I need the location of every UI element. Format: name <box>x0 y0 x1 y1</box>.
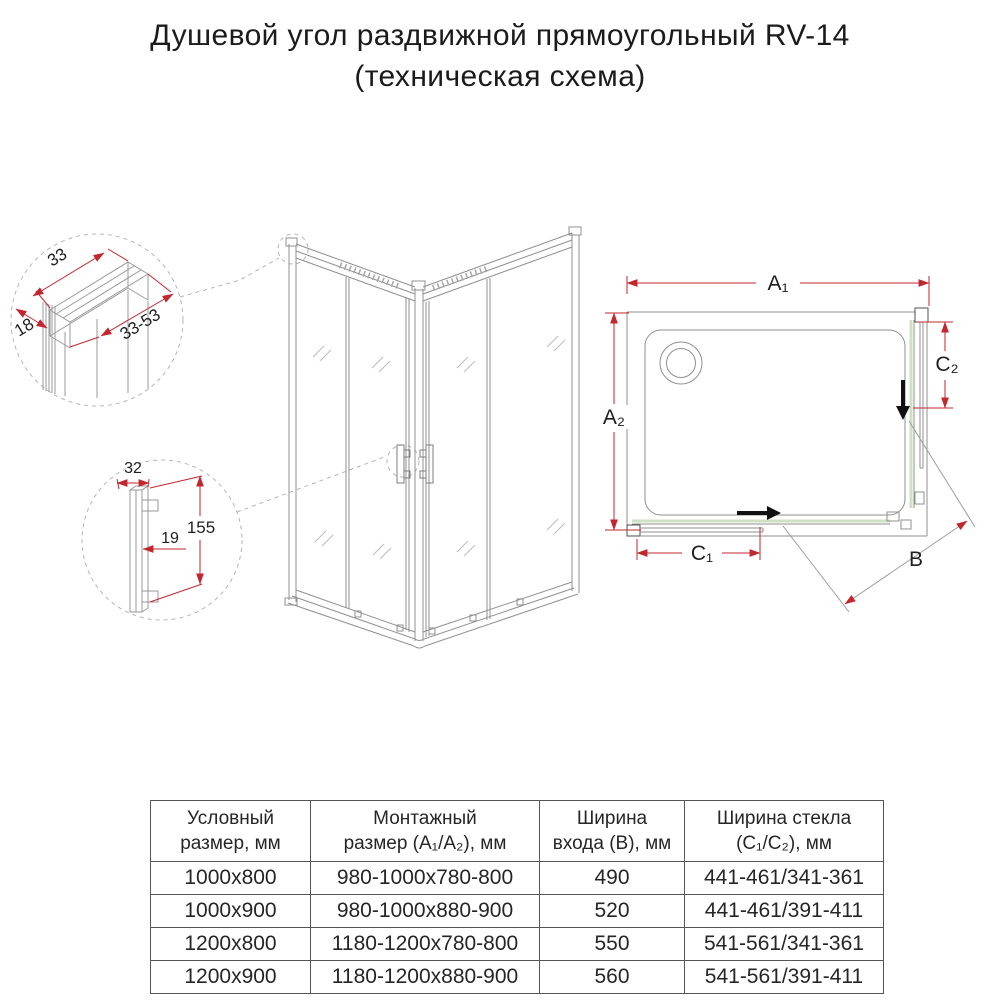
wall-posts <box>285 227 581 641</box>
col-header-nominal-size: Условный размер, мм <box>151 801 311 862</box>
cell-glass-width: 541-561/341-361 <box>685 928 884 961</box>
table-header-row: Условный размер, мм Монтажный размер (A₁… <box>151 801 884 862</box>
cell-mounting-size: 1180-1200x880-900 <box>311 961 540 994</box>
slide-arrow-right-shaft <box>737 511 768 515</box>
table-row: 1000x900 980-1000x880-900 520 441-461/39… <box>151 895 884 928</box>
header-text: Ширина стекла <box>687 806 881 831</box>
callout-circle-handle <box>387 445 419 477</box>
cell-mounting-size: 980-1000x780-800 <box>311 862 540 895</box>
header-text: входа (B), мм <box>542 831 682 856</box>
handle-gap-label: 19 <box>161 530 179 547</box>
handle-depth-label: 32 <box>124 460 142 477</box>
detail-handle-view: 32 19 155 <box>82 460 242 620</box>
header-text: (C₁/C₂), мм <box>687 831 881 856</box>
handle-height-label: 155 <box>187 518 215 537</box>
cell-nominal-size: 1000x800 <box>151 862 311 895</box>
cell-glass-width: 441-461/391-411 <box>685 895 884 928</box>
dim-label-c2: C₂ <box>935 353 958 376</box>
technical-scheme-page: Душевой угол раздвижной прямоугольный RV… <box>0 0 1000 1000</box>
cell-mounting-size: 1180-1200x780-800 <box>311 928 540 961</box>
leader-to-handle <box>237 456 387 512</box>
table-row: 1200x800 1180-1200x780-800 550 541-561/3… <box>151 928 884 961</box>
header-text: размер (A₁/A₂), мм <box>313 831 537 856</box>
detail-profile-view: 33 18 33-53 <box>11 234 183 406</box>
header-text: Условный <box>153 806 308 831</box>
header-text: Ширина <box>542 806 682 831</box>
glass-panel-edges <box>346 277 490 637</box>
dim-label-a2: A₂ <box>603 406 625 429</box>
dim-label-b: B <box>909 548 923 571</box>
drain-circle <box>660 342 702 384</box>
cell-entry-width: 550 <box>540 928 685 961</box>
cell-nominal-size: 1200x900 <box>151 961 311 994</box>
cell-entry-width: 490 <box>540 862 685 895</box>
table-row: 1000x800 980-1000x780-800 490 441-461/34… <box>151 862 884 895</box>
door-direction-arrows <box>737 380 910 520</box>
cell-entry-width: 560 <box>540 961 685 994</box>
slide-arrow-down-head <box>896 406 910 420</box>
bottom-glass-wall <box>632 521 927 536</box>
cell-nominal-size: 1000x900 <box>151 895 311 928</box>
cell-glass-width: 441-461/341-361 <box>685 862 884 895</box>
cell-mounting-size: 980-1000x880-900 <box>311 895 540 928</box>
tray-outline <box>627 308 928 536</box>
col-header-entry-width: Ширина входа (B), мм <box>540 801 685 862</box>
leader-to-profile <box>180 258 279 297</box>
bottom-tray <box>288 582 578 648</box>
plan-view: A₁ A₂ C₂ C₁ B <box>595 271 975 612</box>
profile-dimensions <box>16 249 173 347</box>
header-text: Монтажный <box>313 806 537 831</box>
profile-range-label: 33-53 <box>117 305 164 344</box>
cell-nominal-size: 1200x800 <box>151 928 311 961</box>
profile-depth-label: 18 <box>11 314 37 340</box>
dim-label-a1: A₁ <box>767 272 788 295</box>
glass-reflection-marks <box>313 336 565 559</box>
header-text: размер, мм <box>153 831 308 856</box>
profile-width-label: 33 <box>44 244 70 270</box>
cell-entry-width: 520 <box>540 895 685 928</box>
table-row: 1200x900 1180-1200x880-900 560 541-561/3… <box>151 961 884 994</box>
dim-label-c1: C₁ <box>691 542 713 565</box>
col-header-mounting-size: Монтажный размер (A₁/A₂), мм <box>311 801 540 862</box>
slide-arrow-down-shaft <box>901 380 905 407</box>
isometric-view <box>285 227 581 648</box>
cell-glass-width: 541-561/391-411 <box>685 961 884 994</box>
profile-glass-edge <box>43 302 55 394</box>
size-table: Условный размер, мм Монтажный размер (A₁… <box>150 800 884 994</box>
slide-arrow-right-head <box>767 506 781 520</box>
col-header-glass-width: Ширина стекла (C₁/C₂), мм <box>685 801 884 862</box>
top-rails <box>296 233 572 301</box>
technical-drawing: 33 18 33-53 32 19 <box>0 0 1000 780</box>
